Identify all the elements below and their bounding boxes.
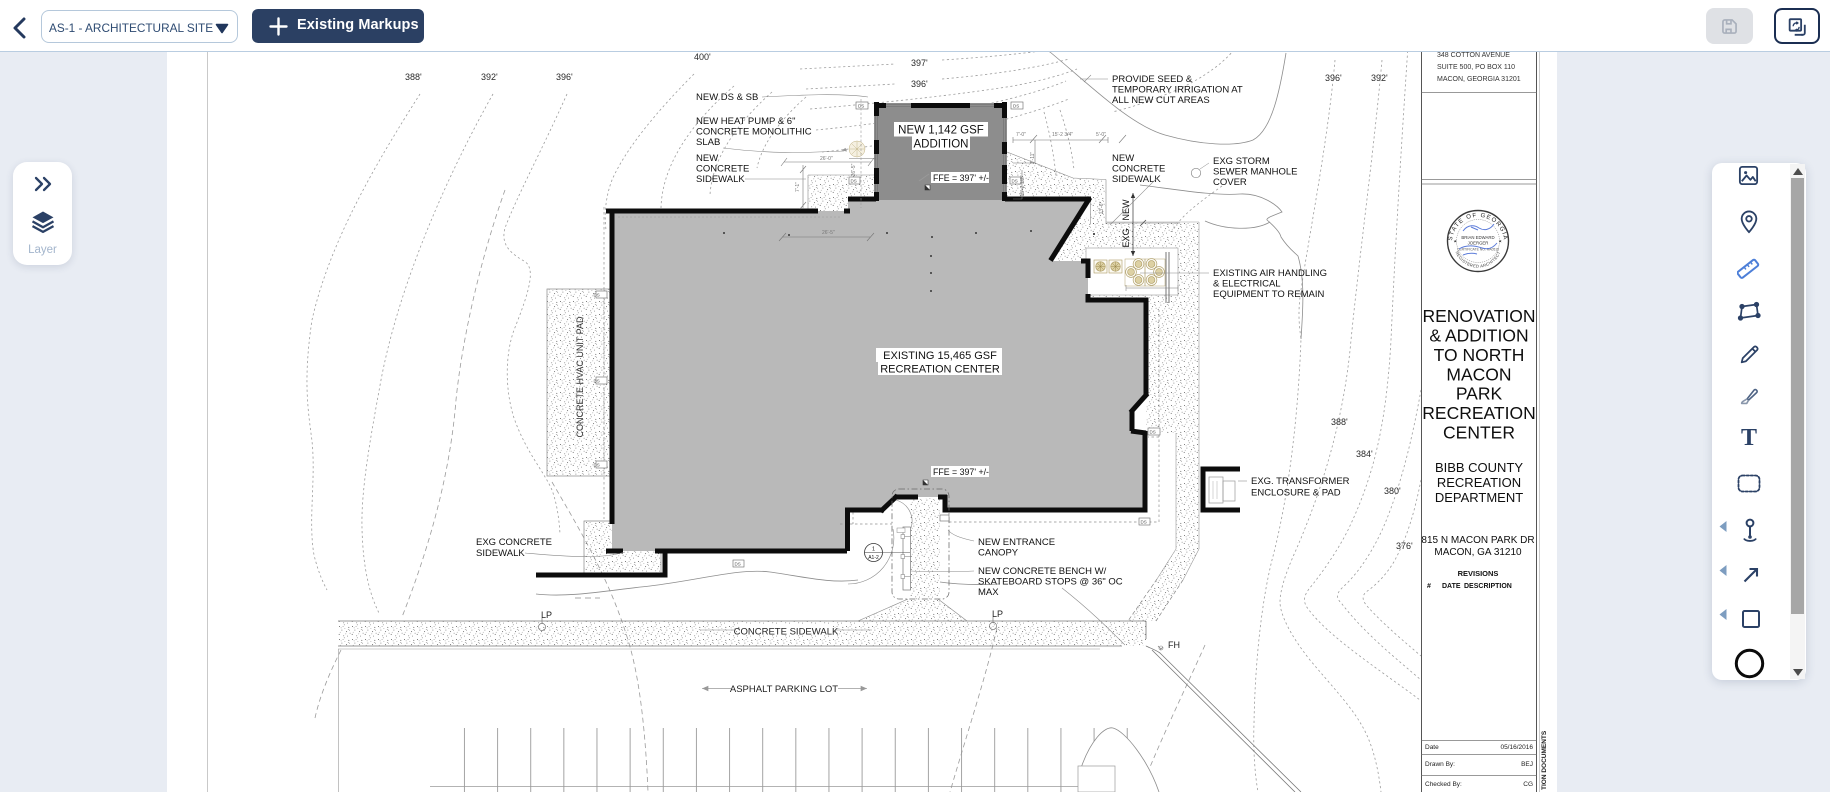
svg-text:SIDEWALK: SIDEWALK bbox=[1112, 174, 1161, 185]
svg-text:Checked By:: Checked By: bbox=[1425, 781, 1462, 788]
svg-text:SLAB: SLAB bbox=[696, 137, 720, 148]
svg-text:EXG: EXG bbox=[1121, 228, 1131, 247]
svg-text:15'-2 1/2": 15'-2 1/2" bbox=[1020, 175, 1026, 196]
svg-text:CANOPY: CANOPY bbox=[978, 548, 1019, 559]
svg-text:26'-5": 26'-5" bbox=[851, 163, 857, 176]
svg-text:348 COTTON AVENUE: 348 COTTON AVENUE bbox=[1437, 52, 1510, 59]
svg-text:SEWER MANHOLE: SEWER MANHOLE bbox=[1213, 167, 1297, 178]
svg-text:LP: LP bbox=[992, 609, 1003, 619]
svg-text:26'-0": 26'-0" bbox=[820, 156, 833, 162]
svg-text:DS: DS bbox=[594, 293, 600, 298]
svg-text:13'-6": 13'-6" bbox=[1099, 201, 1105, 214]
svg-text:RECREATION: RECREATION bbox=[1422, 403, 1535, 423]
svg-text:376': 376' bbox=[1396, 541, 1413, 551]
svg-text:400': 400' bbox=[694, 52, 711, 62]
svg-text:DS: DS bbox=[594, 379, 600, 384]
svg-text:FFE = 397' +/-: FFE = 397' +/- bbox=[933, 467, 989, 477]
svg-text:DS: DS bbox=[594, 463, 600, 468]
svg-text:TEMPORARY IRRIGATION AT: TEMPORARY IRRIGATION AT bbox=[1112, 85, 1243, 96]
svg-text:DS: DS bbox=[1013, 104, 1019, 109]
svg-text:7'-1": 7'-1" bbox=[795, 182, 801, 192]
svg-text:CONCRETE MONOLITHIC: CONCRETE MONOLITHIC bbox=[696, 127, 812, 138]
svg-text:& ADDITION: & ADDITION bbox=[1429, 326, 1528, 346]
svg-text:COVER: COVER bbox=[1213, 177, 1247, 188]
svg-text:ENCLOSURE & PAD: ENCLOSURE & PAD bbox=[1251, 488, 1341, 499]
svg-text:815 N MACON PARK DR: 815 N MACON PARK DR bbox=[1421, 535, 1534, 546]
svg-text:396': 396' bbox=[556, 72, 573, 82]
svg-text:PROVIDE SEED &: PROVIDE SEED & bbox=[1112, 74, 1193, 85]
svg-text:MAX: MAX bbox=[978, 587, 999, 598]
svg-text:DS: DS bbox=[1150, 430, 1156, 435]
svg-text:MACON: MACON bbox=[1446, 365, 1511, 385]
svg-text:DS: DS bbox=[851, 179, 857, 184]
svg-text:BRIAN EDWARD: BRIAN EDWARD bbox=[1461, 235, 1494, 240]
svg-text:EXG STORM: EXG STORM bbox=[1213, 156, 1270, 167]
svg-text:396': 396' bbox=[911, 79, 928, 89]
svg-text:MACON, GEORGIA 31201: MACON, GEORGIA 31201 bbox=[1437, 76, 1521, 83]
svg-text:EXISTING AIR HANDLING: EXISTING AIR HANDLING bbox=[1213, 268, 1327, 279]
svg-text:NEW HEAT PUMP & 6": NEW HEAT PUMP & 6" bbox=[696, 116, 795, 127]
svg-text:CERTIFICATE NO. RA0515: CERTIFICATE NO. RA0515 bbox=[1457, 248, 1499, 252]
svg-text:DS: DS bbox=[1012, 179, 1018, 184]
svg-text:CONCRETE: CONCRETE bbox=[1112, 164, 1165, 175]
svg-text:392': 392' bbox=[481, 72, 498, 82]
svg-text:392': 392' bbox=[1371, 73, 1388, 83]
svg-text:ALL NEW CUT AREAS: ALL NEW CUT AREAS bbox=[1112, 95, 1210, 106]
svg-text:CG: CG bbox=[1523, 781, 1533, 788]
svg-text:DESCRIPTION: DESCRIPTION bbox=[1464, 583, 1512, 590]
svg-text:5'-0": 5'-0" bbox=[1096, 132, 1106, 138]
svg-text:NEW: NEW bbox=[696, 153, 718, 164]
svg-text:DATE: DATE bbox=[1442, 583, 1461, 590]
svg-text:NEW: NEW bbox=[1121, 199, 1131, 221]
svg-text:#: # bbox=[1427, 583, 1431, 590]
svg-text:3'-11": 3'-11" bbox=[1030, 152, 1036, 165]
svg-text:SUITE 500, PO BOX 110: SUITE 500, PO BOX 110 bbox=[1437, 64, 1515, 71]
svg-text:FH: FH bbox=[1168, 640, 1180, 650]
svg-text:EQUIPMENT TO REMAIN: EQUIPMENT TO REMAIN bbox=[1213, 289, 1325, 300]
svg-text:388': 388' bbox=[1331, 417, 1348, 427]
svg-text:CONCRETE HVAC UNIT PAD: CONCRETE HVAC UNIT PAD bbox=[575, 316, 585, 438]
svg-text:JOERGER: JOERGER bbox=[1468, 241, 1489, 246]
svg-text:TION DOCUMENTS: TION DOCUMENTS bbox=[1541, 730, 1548, 790]
svg-text:384': 384' bbox=[1356, 449, 1373, 459]
svg-text:EXG. TRANSFORMER: EXG. TRANSFORMER bbox=[1251, 476, 1350, 487]
svg-text:396': 396' bbox=[1325, 73, 1342, 83]
svg-text:ASPHALT PARKING LOT: ASPHALT PARKING LOT bbox=[730, 684, 838, 695]
svg-text:NEW ENTRANCE: NEW ENTRANCE bbox=[978, 537, 1055, 548]
svg-text:A1-2: A1-2 bbox=[868, 555, 879, 561]
svg-text:Drawn By:: Drawn By: bbox=[1425, 761, 1455, 768]
svg-text:TO NORTH: TO NORTH bbox=[1434, 345, 1525, 365]
svg-text:388': 388' bbox=[405, 72, 422, 82]
svg-text:CONCRETE: CONCRETE bbox=[696, 164, 749, 175]
svg-text:380': 380' bbox=[1384, 486, 1401, 496]
svg-text:CENTER: CENTER bbox=[1443, 423, 1515, 443]
svg-text:SIDEWALK: SIDEWALK bbox=[476, 548, 525, 559]
svg-text:MACON, GA 31210: MACON, GA 31210 bbox=[1434, 547, 1522, 558]
svg-text:EXISTING 15,465 GSF: EXISTING 15,465 GSF bbox=[883, 350, 997, 362]
svg-text:RENOVATION: RENOVATION bbox=[1422, 306, 1535, 326]
svg-text:DS: DS bbox=[1141, 520, 1147, 525]
svg-text:REVISIONS: REVISIONS bbox=[1458, 569, 1499, 578]
svg-text:NEW: NEW bbox=[1112, 153, 1134, 164]
svg-text:26'-5": 26'-5" bbox=[822, 230, 835, 236]
svg-text:SKATEBOARD STOPS @ 36" OC: SKATEBOARD STOPS @ 36" OC bbox=[978, 577, 1123, 588]
svg-text:LP: LP bbox=[541, 610, 552, 620]
svg-text:Date: Date bbox=[1425, 744, 1439, 751]
svg-text:DEPARTMENT: DEPARTMENT bbox=[1435, 490, 1523, 505]
svg-text:& ELECTRICAL: & ELECTRICAL bbox=[1213, 279, 1281, 290]
svg-text:NEW DS & SB: NEW DS & SB bbox=[696, 92, 758, 103]
svg-text:1: 1 bbox=[872, 547, 875, 553]
svg-text:15'-2 3/4": 15'-2 3/4" bbox=[1052, 132, 1073, 138]
svg-text:PARK: PARK bbox=[1456, 384, 1503, 404]
svg-text:DS: DS bbox=[735, 562, 741, 567]
svg-text:7'-0": 7'-0" bbox=[1016, 132, 1026, 138]
svg-text:RECREATION CENTER: RECREATION CENTER bbox=[880, 364, 1000, 376]
svg-text:BEJ: BEJ bbox=[1521, 761, 1533, 768]
svg-text:BIBB COUNTY: BIBB COUNTY bbox=[1435, 460, 1523, 475]
svg-text:397': 397' bbox=[911, 58, 928, 68]
svg-text:SIDEWALK: SIDEWALK bbox=[696, 174, 745, 185]
svg-text:05/16/2016: 05/16/2016 bbox=[1500, 744, 1533, 751]
svg-text:EXG CONCRETE: EXG CONCRETE bbox=[476, 537, 552, 548]
svg-text:NEW CONCRETE BENCH W/: NEW CONCRETE BENCH W/ bbox=[978, 566, 1107, 577]
svg-text:NEW 1,142 GSF: NEW 1,142 GSF bbox=[898, 125, 984, 137]
svg-text:RECREATION: RECREATION bbox=[1437, 475, 1521, 490]
svg-text:ADDITION: ADDITION bbox=[914, 139, 969, 151]
svg-text:CONCRETE SIDEWALK: CONCRETE SIDEWALK bbox=[734, 627, 839, 638]
svg-text:FFE = 397' +/-: FFE = 397' +/- bbox=[933, 173, 989, 183]
